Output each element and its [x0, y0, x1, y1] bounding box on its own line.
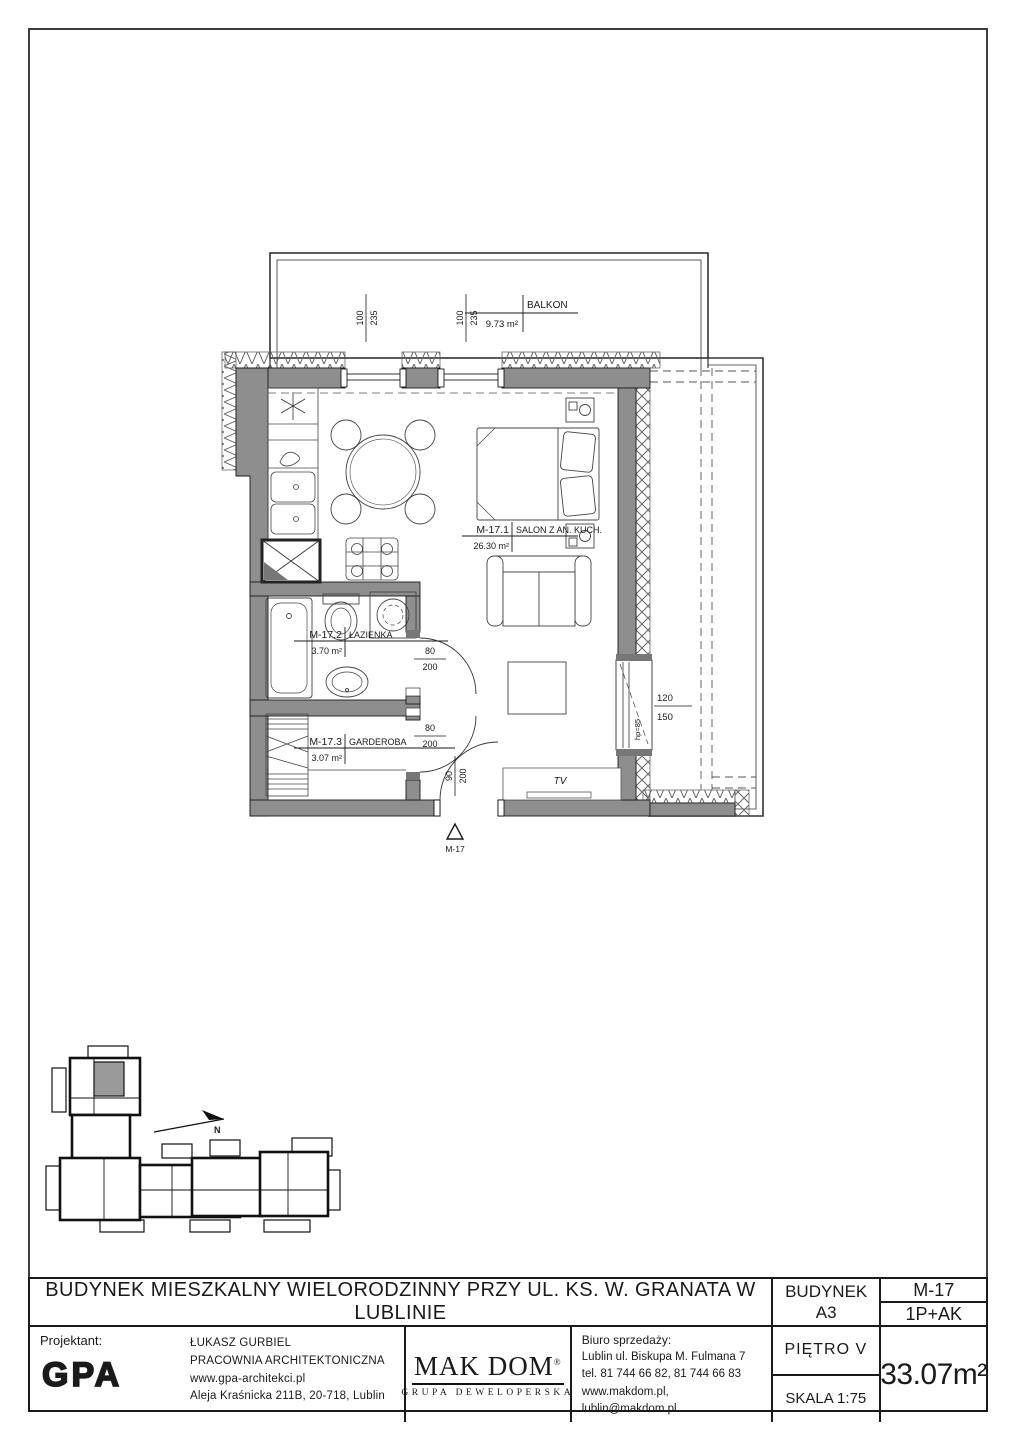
designer-studio: PRACOWNIA ARCHITEKTONICZNA [190, 1353, 385, 1371]
designer-cell: Projektant: GPA ŁUKASZ GURBIEL PRACOWNIA… [30, 1327, 404, 1422]
dim-w: 100 [355, 310, 365, 325]
designer-address: Aleja Kraśnicka 211B, 20-718, Lublin [190, 1388, 385, 1406]
unit-type: 1P+AK [881, 1303, 986, 1325]
floor-value: PIĘTRO V [773, 1327, 879, 1376]
scale-value: SKALA 1:75 [773, 1376, 879, 1423]
dim-h: 200 [422, 739, 437, 749]
room-name: ŁAZIENKA [349, 630, 393, 640]
drawing-sheet: BALKON 9.73 m² [0, 0, 1018, 1440]
project-title: BUDYNEK MIESZKALNY WIELORODZINNY PRZY UL… [30, 1279, 771, 1325]
gpa-logo: GPA [40, 1358, 168, 1392]
room-area: 3.70 m² [311, 646, 342, 656]
balcony-label: BALKON 9.73 m² [465, 295, 578, 332]
sink-small-icon [280, 452, 300, 466]
makdom-logo-text: MAK DOM [414, 1351, 554, 1381]
floor-plan: BALKON 9.73 m² [200, 240, 780, 865]
building-cell: BUDYNEK A3 [771, 1279, 880, 1325]
designer-label: Projektant: [40, 1333, 190, 1348]
building-value: A3 [816, 1302, 837, 1323]
designer-website: www.gpa-architekci.pl [190, 1371, 385, 1389]
kitchen-sink-bowl [271, 472, 315, 502]
floor-scale-cell: PIĘTRO V SKALA 1:75 [771, 1327, 879, 1422]
stove-icon [346, 538, 398, 580]
registered-mark: ® [554, 1357, 562, 1367]
dim-h: 235 [469, 310, 479, 325]
room-name: GARDEROBA [349, 737, 407, 747]
dim-entrance-door: 90 200 [444, 756, 468, 796]
north-arrow-icon: N [154, 1110, 224, 1135]
title-block-row-1: BUDYNEK MIESZKALNY WIELORODZINNY PRZY UL… [30, 1279, 986, 1325]
dim-w: 80 [425, 723, 435, 733]
side-balcony-outline [648, 358, 763, 816]
room-id: M-17.1 [476, 524, 509, 536]
dim-w: 100 [455, 310, 465, 325]
sales-office-label: Biuro sprzedaży: [582, 1331, 671, 1349]
dim-h: 200 [422, 662, 437, 672]
building-key-plan: N [42, 1040, 342, 1235]
designer-name: ŁUKASZ GURBIEL [190, 1335, 385, 1353]
room-id: M-17.3 [309, 736, 342, 748]
dim-h: 150 [657, 712, 673, 723]
north-label: N [214, 1125, 221, 1135]
makdom-tagline: GRUPA DEWELOPERSKA [401, 1388, 574, 1398]
developer-logo-cell: MAK DOM® GRUPA DEWELOPERSKA [404, 1327, 570, 1422]
room-label-salon: M-17.1 SALON Z AN. KUCH. 26.30 m² [462, 522, 602, 552]
dim-w: 120 [657, 693, 673, 704]
building-label: BUDYNEK [785, 1281, 867, 1302]
bathroom-door [406, 630, 476, 696]
highlighted-unit [94, 1062, 124, 1096]
room-name: SALON Z AN. KUCH. [516, 525, 602, 535]
sales-office-cell: Biuro sprzedaży: Lublin ul. Biskupa M. F… [570, 1327, 771, 1422]
kitchen-sink-bowl [271, 504, 315, 534]
title-block-row-2: Projektant: GPA ŁUKASZ GURBIEL PRACOWNIA… [30, 1325, 986, 1422]
balcony-door-left [341, 369, 406, 387]
sales-office-web: www.makdom.pl, lublin@makdom.pl [582, 1384, 761, 1419]
dim-h: 200 [458, 768, 468, 783]
tv-label: TV [554, 776, 568, 787]
fridge-snowflake-icon [281, 392, 305, 420]
dining-table [331, 420, 435, 524]
bathroom [266, 592, 416, 698]
unit-cell: M-17 1P+AK [879, 1279, 986, 1325]
total-area: 33.07m² [879, 1327, 986, 1422]
section-marker-label: M-17 [445, 844, 465, 854]
title-block: BUDYNEK MIESZKALNY WIELORODZINNY PRZY UL… [28, 1277, 988, 1412]
sales-office-address: Lublin ul. Biskupa M. Fulmana 7 [582, 1349, 746, 1366]
dim-bathroom-door: 80 200 [414, 646, 446, 672]
sofa [487, 556, 591, 626]
sales-office-phones: tel. 81 744 66 82, 81 744 66 83 [582, 1366, 741, 1383]
balcony-door-right [438, 369, 504, 387]
section-marker: M-17 [445, 824, 465, 854]
makdom-logo: MAK DOM® [412, 1351, 564, 1385]
balcony-name: BALKON [527, 300, 568, 311]
room-id: M-17.2 [309, 629, 342, 641]
dim-h: 235 [369, 310, 379, 325]
unit-code: M-17 [881, 1279, 986, 1303]
dim-w: 80 [425, 646, 435, 656]
tv-cabinet: TV [503, 768, 621, 800]
dim-w: 90 [444, 771, 454, 781]
coffee-table [508, 662, 566, 714]
side-window: hp=85 120 150 [616, 654, 692, 756]
balcony-outline [270, 253, 708, 368]
shaft [262, 540, 320, 582]
room-area: 3.07 m² [311, 753, 342, 763]
gpa-logo-text: GPA [42, 1358, 122, 1392]
dim-balcony-door-right: 100 235 [455, 294, 479, 342]
bed [477, 428, 599, 520]
dim-balcony-door-left: 100 235 [355, 294, 379, 342]
bathtub [266, 598, 312, 698]
room-area: 26.30 m² [473, 541, 509, 551]
balcony-area: 9.73 m² [486, 319, 518, 330]
window-sill-note: hp=85 [633, 719, 642, 740]
dim-wardrobe-door: 80 200 [414, 723, 446, 749]
